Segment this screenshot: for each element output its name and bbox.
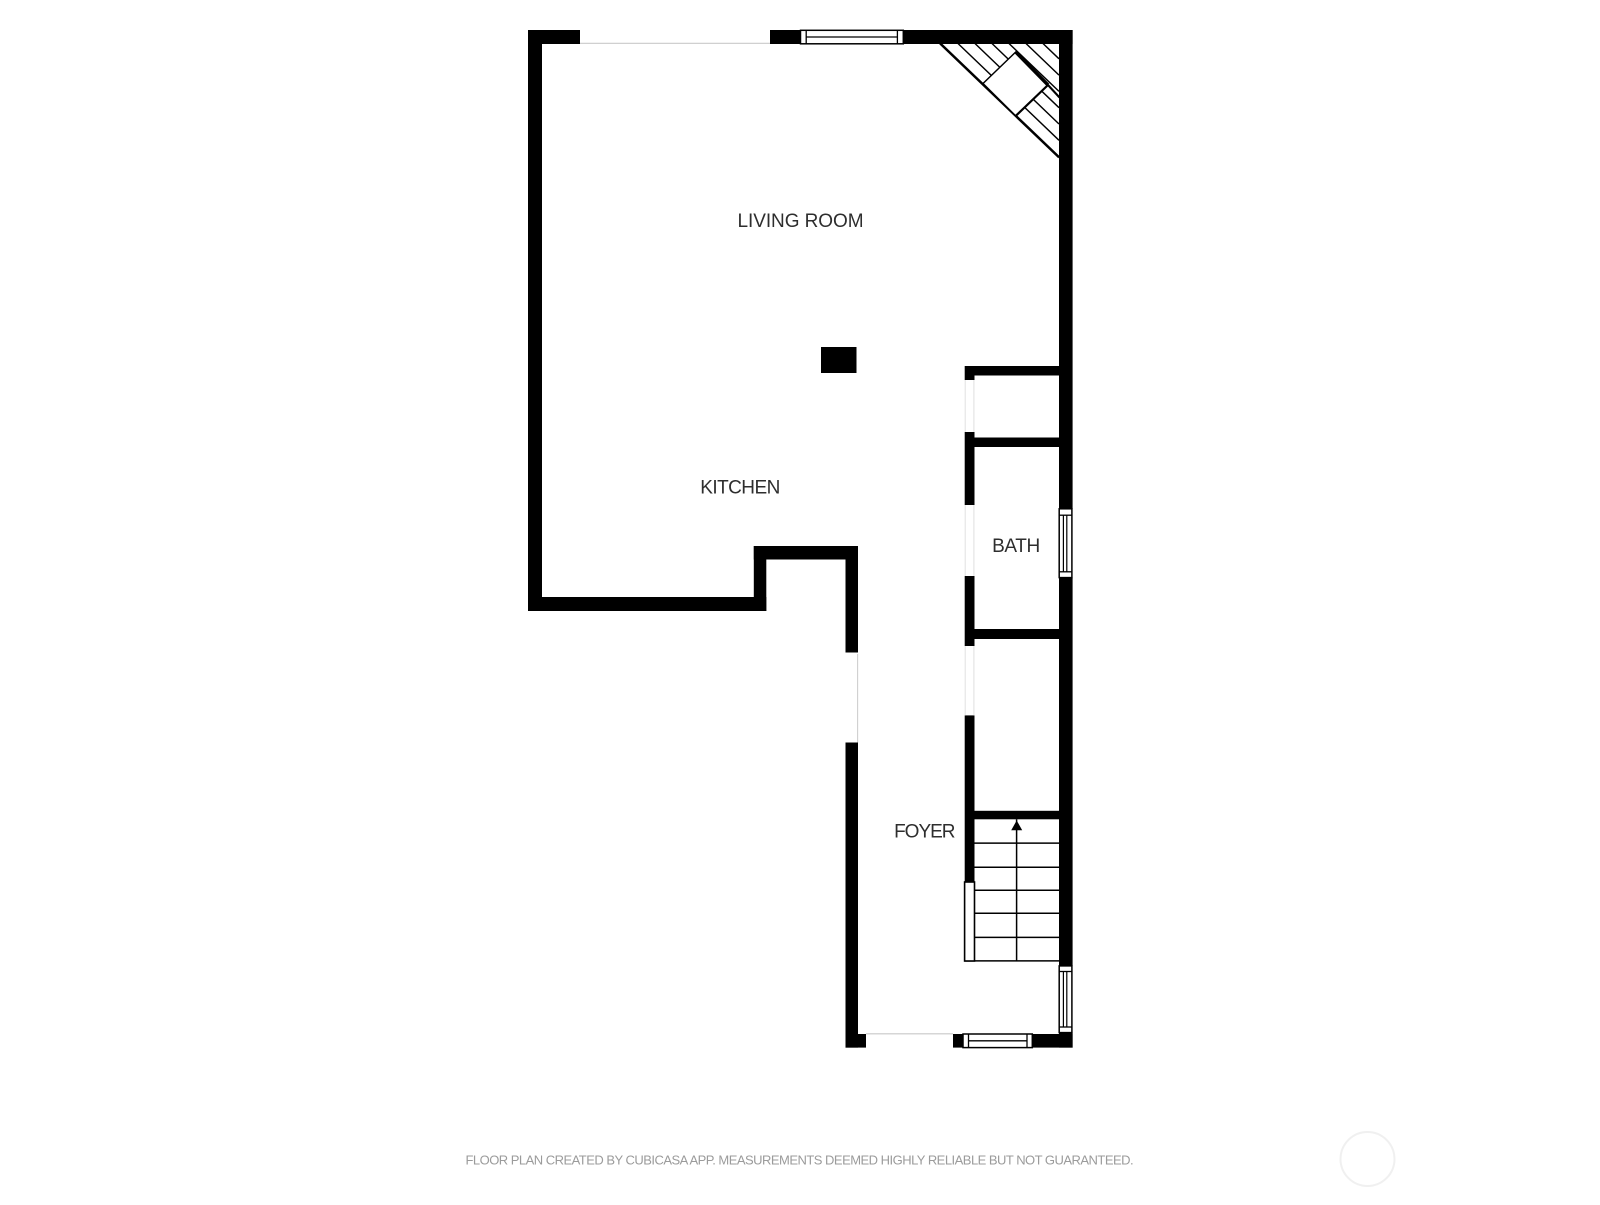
svg-text:KITCHEN: KITCHEN <box>700 478 779 499</box>
svg-text:FOYER: FOYER <box>894 822 955 843</box>
svg-text:BATH: BATH <box>992 536 1040 557</box>
svg-text:FLOOR PLAN CREATED BY CUBICASA: FLOOR PLAN CREATED BY CUBICASA APP. MEAS… <box>465 1153 1133 1168</box>
svg-text:LIVING ROOM: LIVING ROOM <box>737 211 863 232</box>
